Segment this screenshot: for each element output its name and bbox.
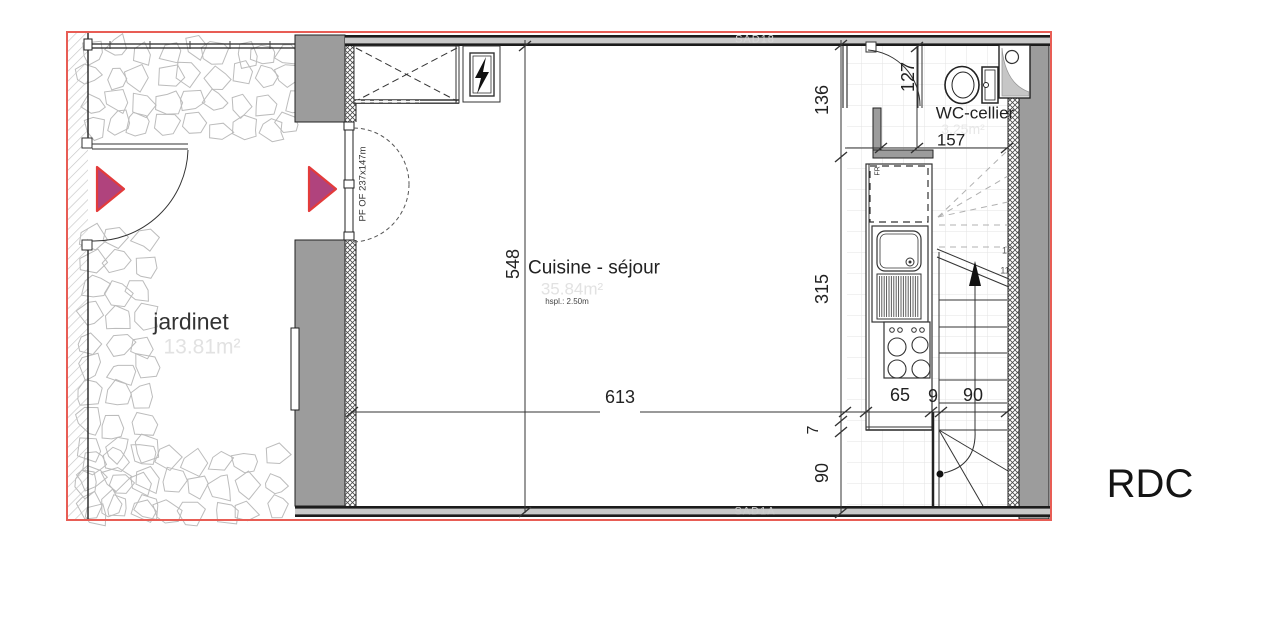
dim-stair-90: 90 xyxy=(963,386,983,404)
floor-title: RDC xyxy=(1107,464,1194,504)
dim-wall-9: 9 xyxy=(928,387,938,405)
dim-room-height: 548 xyxy=(504,249,522,279)
toilet xyxy=(945,67,998,104)
stair-step-number-11: 11 xyxy=(1000,267,1009,276)
stair-step-number-12: 12 xyxy=(1002,247,1012,256)
door-spec-label: PF OF 237x147m xyxy=(358,147,368,222)
room-ceiling-height: hspl.: 2.50m xyxy=(545,298,589,306)
room-label-wc: WC-cellier xyxy=(936,105,1014,122)
dim-wc-height: 127 xyxy=(899,62,917,92)
dim-room-width: 613 xyxy=(605,388,635,406)
bottom-wall-band xyxy=(295,506,1051,517)
dim-315: 315 xyxy=(813,274,831,304)
top-wall-band xyxy=(345,35,1051,46)
entry-arrow-garden xyxy=(97,167,124,211)
jardinet-hatched-wall xyxy=(68,33,88,519)
dim-7: 7 xyxy=(806,426,822,435)
jardinet-top-wall xyxy=(84,39,295,50)
cooktop xyxy=(884,322,930,378)
dim-kitchen-65: 65 xyxy=(890,386,910,404)
beam-label-top: SAD18 xyxy=(735,35,775,46)
closet xyxy=(354,46,459,103)
electrical-panel xyxy=(463,46,500,102)
room-label-cuisine: Cuisine - séjour xyxy=(528,259,660,278)
fridge-label: FR xyxy=(875,166,882,175)
jardinet-stone-texture xyxy=(75,34,310,526)
room-area-cuisine: 35.84m² xyxy=(541,281,603,298)
dim-wc-width: 157 xyxy=(937,132,965,149)
room-area-jardinet: 13.81m² xyxy=(163,337,240,358)
french-door-pf xyxy=(344,122,409,242)
beam-label-bottom: SAD1A xyxy=(734,507,775,518)
wall-notch xyxy=(291,328,299,410)
floor-plan-canvas: jardinet 13.81m² Cuisine - séjour 35.84m… xyxy=(0,0,1277,642)
dim-136: 136 xyxy=(813,85,831,115)
dim-90: 90 xyxy=(813,463,831,483)
entry-arrow-main xyxy=(309,167,336,211)
washbasin xyxy=(999,45,1030,98)
room-label-jardinet: jardinet xyxy=(153,311,228,334)
